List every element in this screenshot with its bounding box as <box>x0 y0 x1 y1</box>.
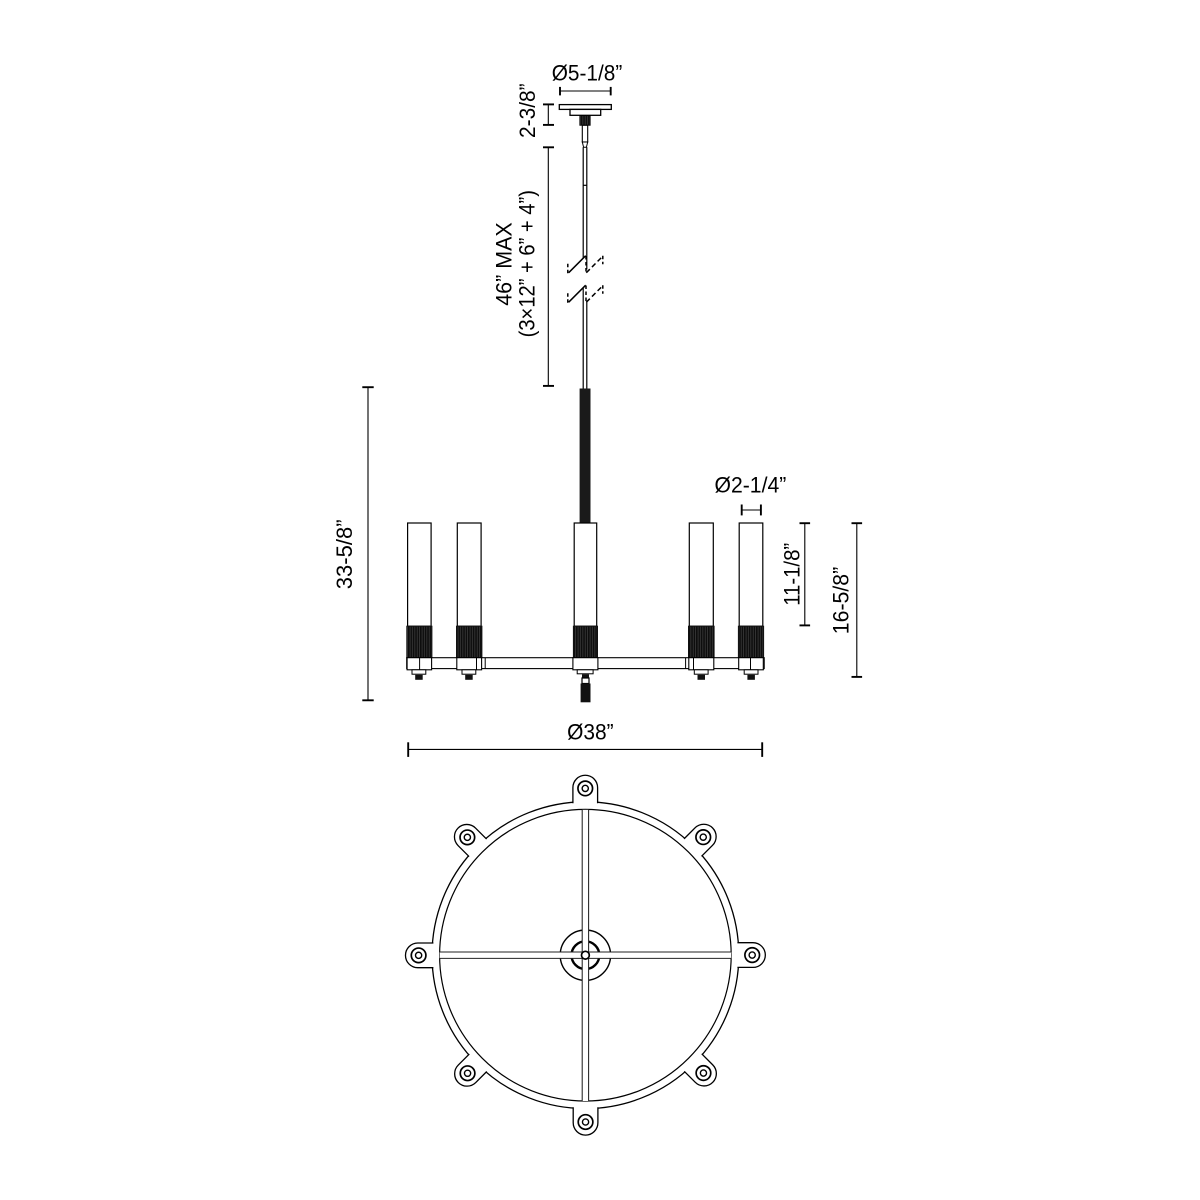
svg-text:16-5/8”: 16-5/8” <box>829 567 854 635</box>
svg-text:33-5/8”: 33-5/8” <box>332 519 357 589</box>
svg-text:2-3/8”: 2-3/8” <box>515 83 540 138</box>
svg-text:Ø5-1/8”: Ø5-1/8” <box>552 61 623 86</box>
svg-text:46” MAX: 46” MAX <box>492 222 517 306</box>
svg-text:Ø2-1/4”: Ø2-1/4” <box>715 473 787 498</box>
svg-text:11-1/8”: 11-1/8” <box>780 543 805 606</box>
svg-text:Ø38”: Ø38” <box>567 720 614 745</box>
svg-text:(3×12” + 6” + 4”): (3×12” + 6” + 4”) <box>515 190 540 337</box>
